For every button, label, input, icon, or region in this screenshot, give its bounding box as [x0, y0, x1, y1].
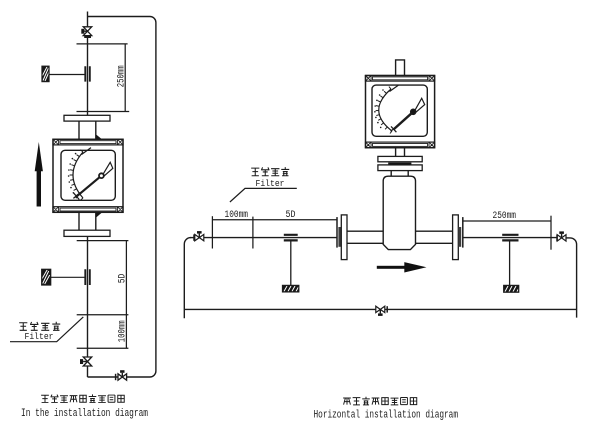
svg-text:5D: 5D: [117, 274, 128, 284]
svg-text:In the installation diagram: In the installation diagram: [21, 408, 148, 420]
svg-text:100mm: 100mm: [225, 209, 249, 221]
svg-text:250mm: 250mm: [493, 210, 517, 222]
svg-text:Filter: Filter: [25, 331, 54, 342]
svg-text:100mm: 100mm: [117, 320, 128, 342]
svg-text:5D: 5D: [286, 209, 296, 221]
svg-text:250mm: 250mm: [116, 65, 127, 87]
svg-text:Horizontal installation diagra: Horizontal installation diagram: [314, 410, 459, 422]
svg-text:Filter: Filter: [256, 178, 285, 189]
